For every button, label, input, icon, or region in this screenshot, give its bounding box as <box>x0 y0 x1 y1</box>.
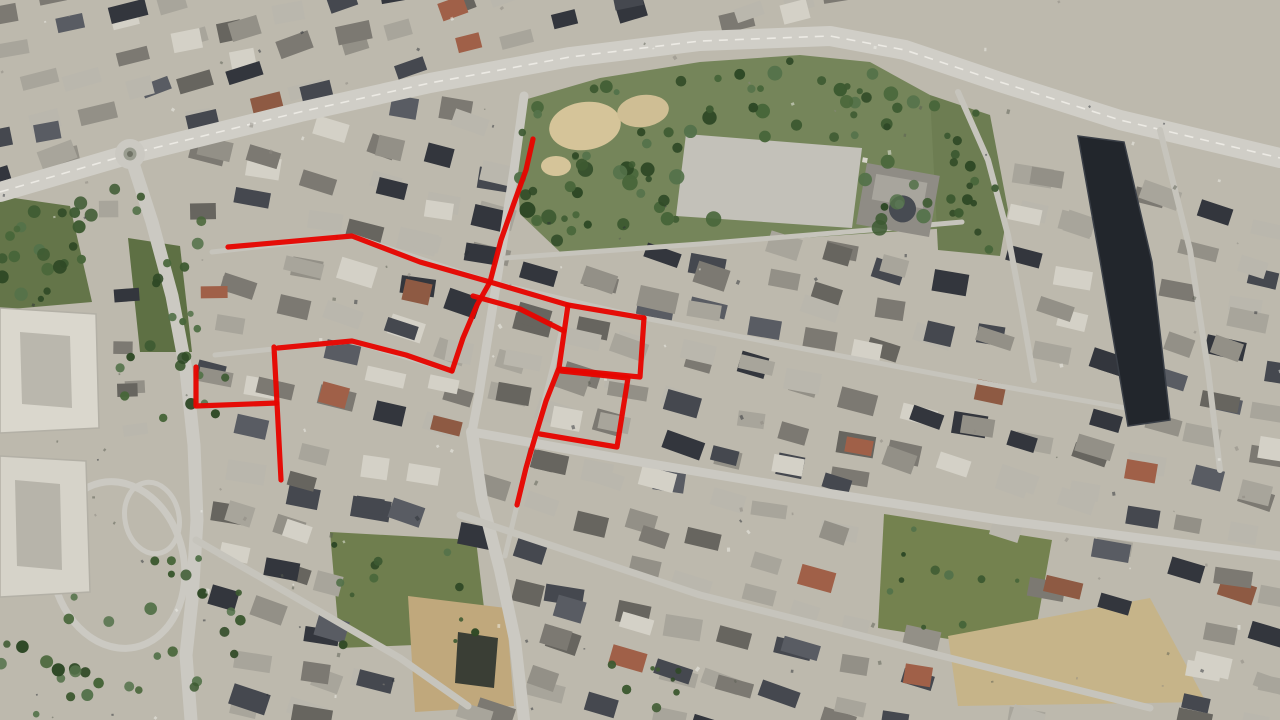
plaza <box>676 134 862 228</box>
roundabout <box>115 139 145 169</box>
satellite-image <box>0 0 1280 720</box>
pale-court-2 <box>15 480 62 570</box>
satellite-map-viewport[interactable] <box>0 0 1280 720</box>
dark-compound <box>455 632 498 688</box>
park-sand-3 <box>541 156 571 176</box>
pale-court-1 <box>20 332 72 408</box>
mosque-minaret <box>862 157 868 163</box>
